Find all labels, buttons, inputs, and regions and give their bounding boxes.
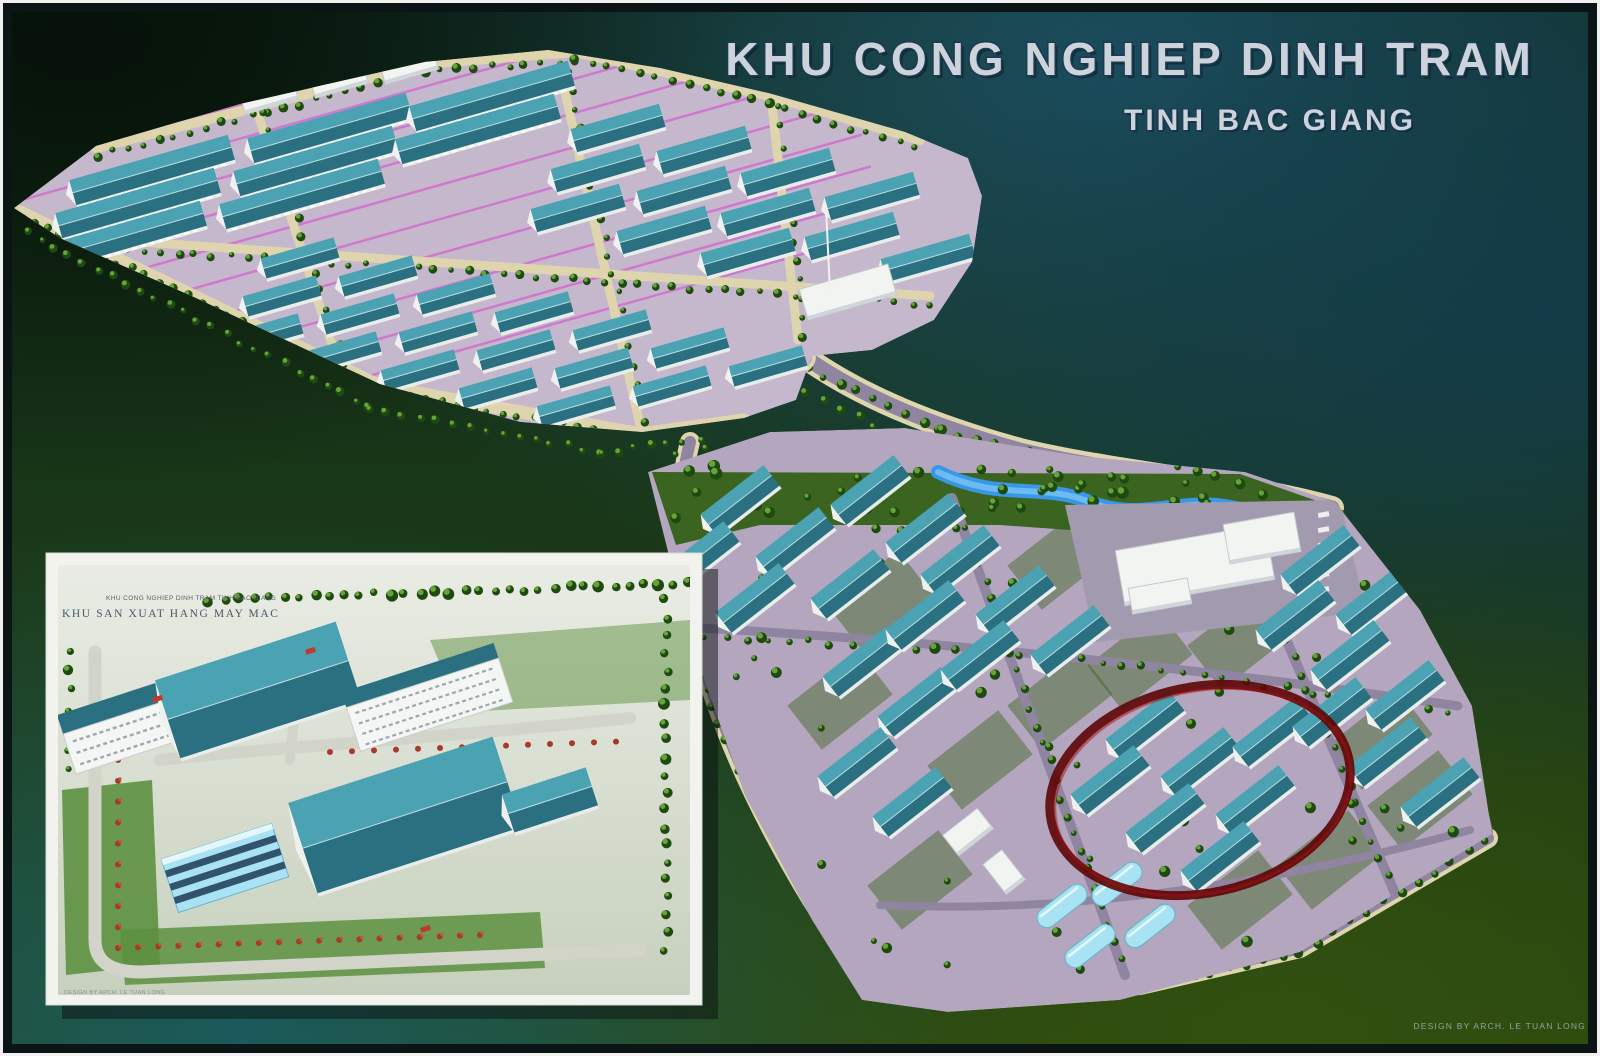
industrial-park-poster: KHU CONG NGHIEP DINH TRAM KHU CONG NGHIE… [0, 0, 1600, 1056]
inset-footnote: DESIGN BY ARCH. LE TUAN LONG [64, 990, 165, 996]
inset-caption-small: KHU CONG NGHIEP DINH TRAM TINH BAC GIANG [106, 595, 276, 602]
inset-detail-view [46, 553, 718, 1019]
poster-subtitle: TINH BAC GIANG [1124, 104, 1416, 137]
designer-credit: DESIGN BY ARCH. LE TUAN LONG [1413, 1021, 1586, 1031]
inset-caption-main: KHU SAN XUAT HANG MAY MAC [62, 608, 280, 620]
dinh-tram-industrial-park-master-plan: KHU CONG NGHIEP DINH TRAM KHU CONG NGHIE… [0, 0, 1600, 1056]
poster-title: KHU CONG NGHIEP DINH TRAM [725, 33, 1535, 85]
